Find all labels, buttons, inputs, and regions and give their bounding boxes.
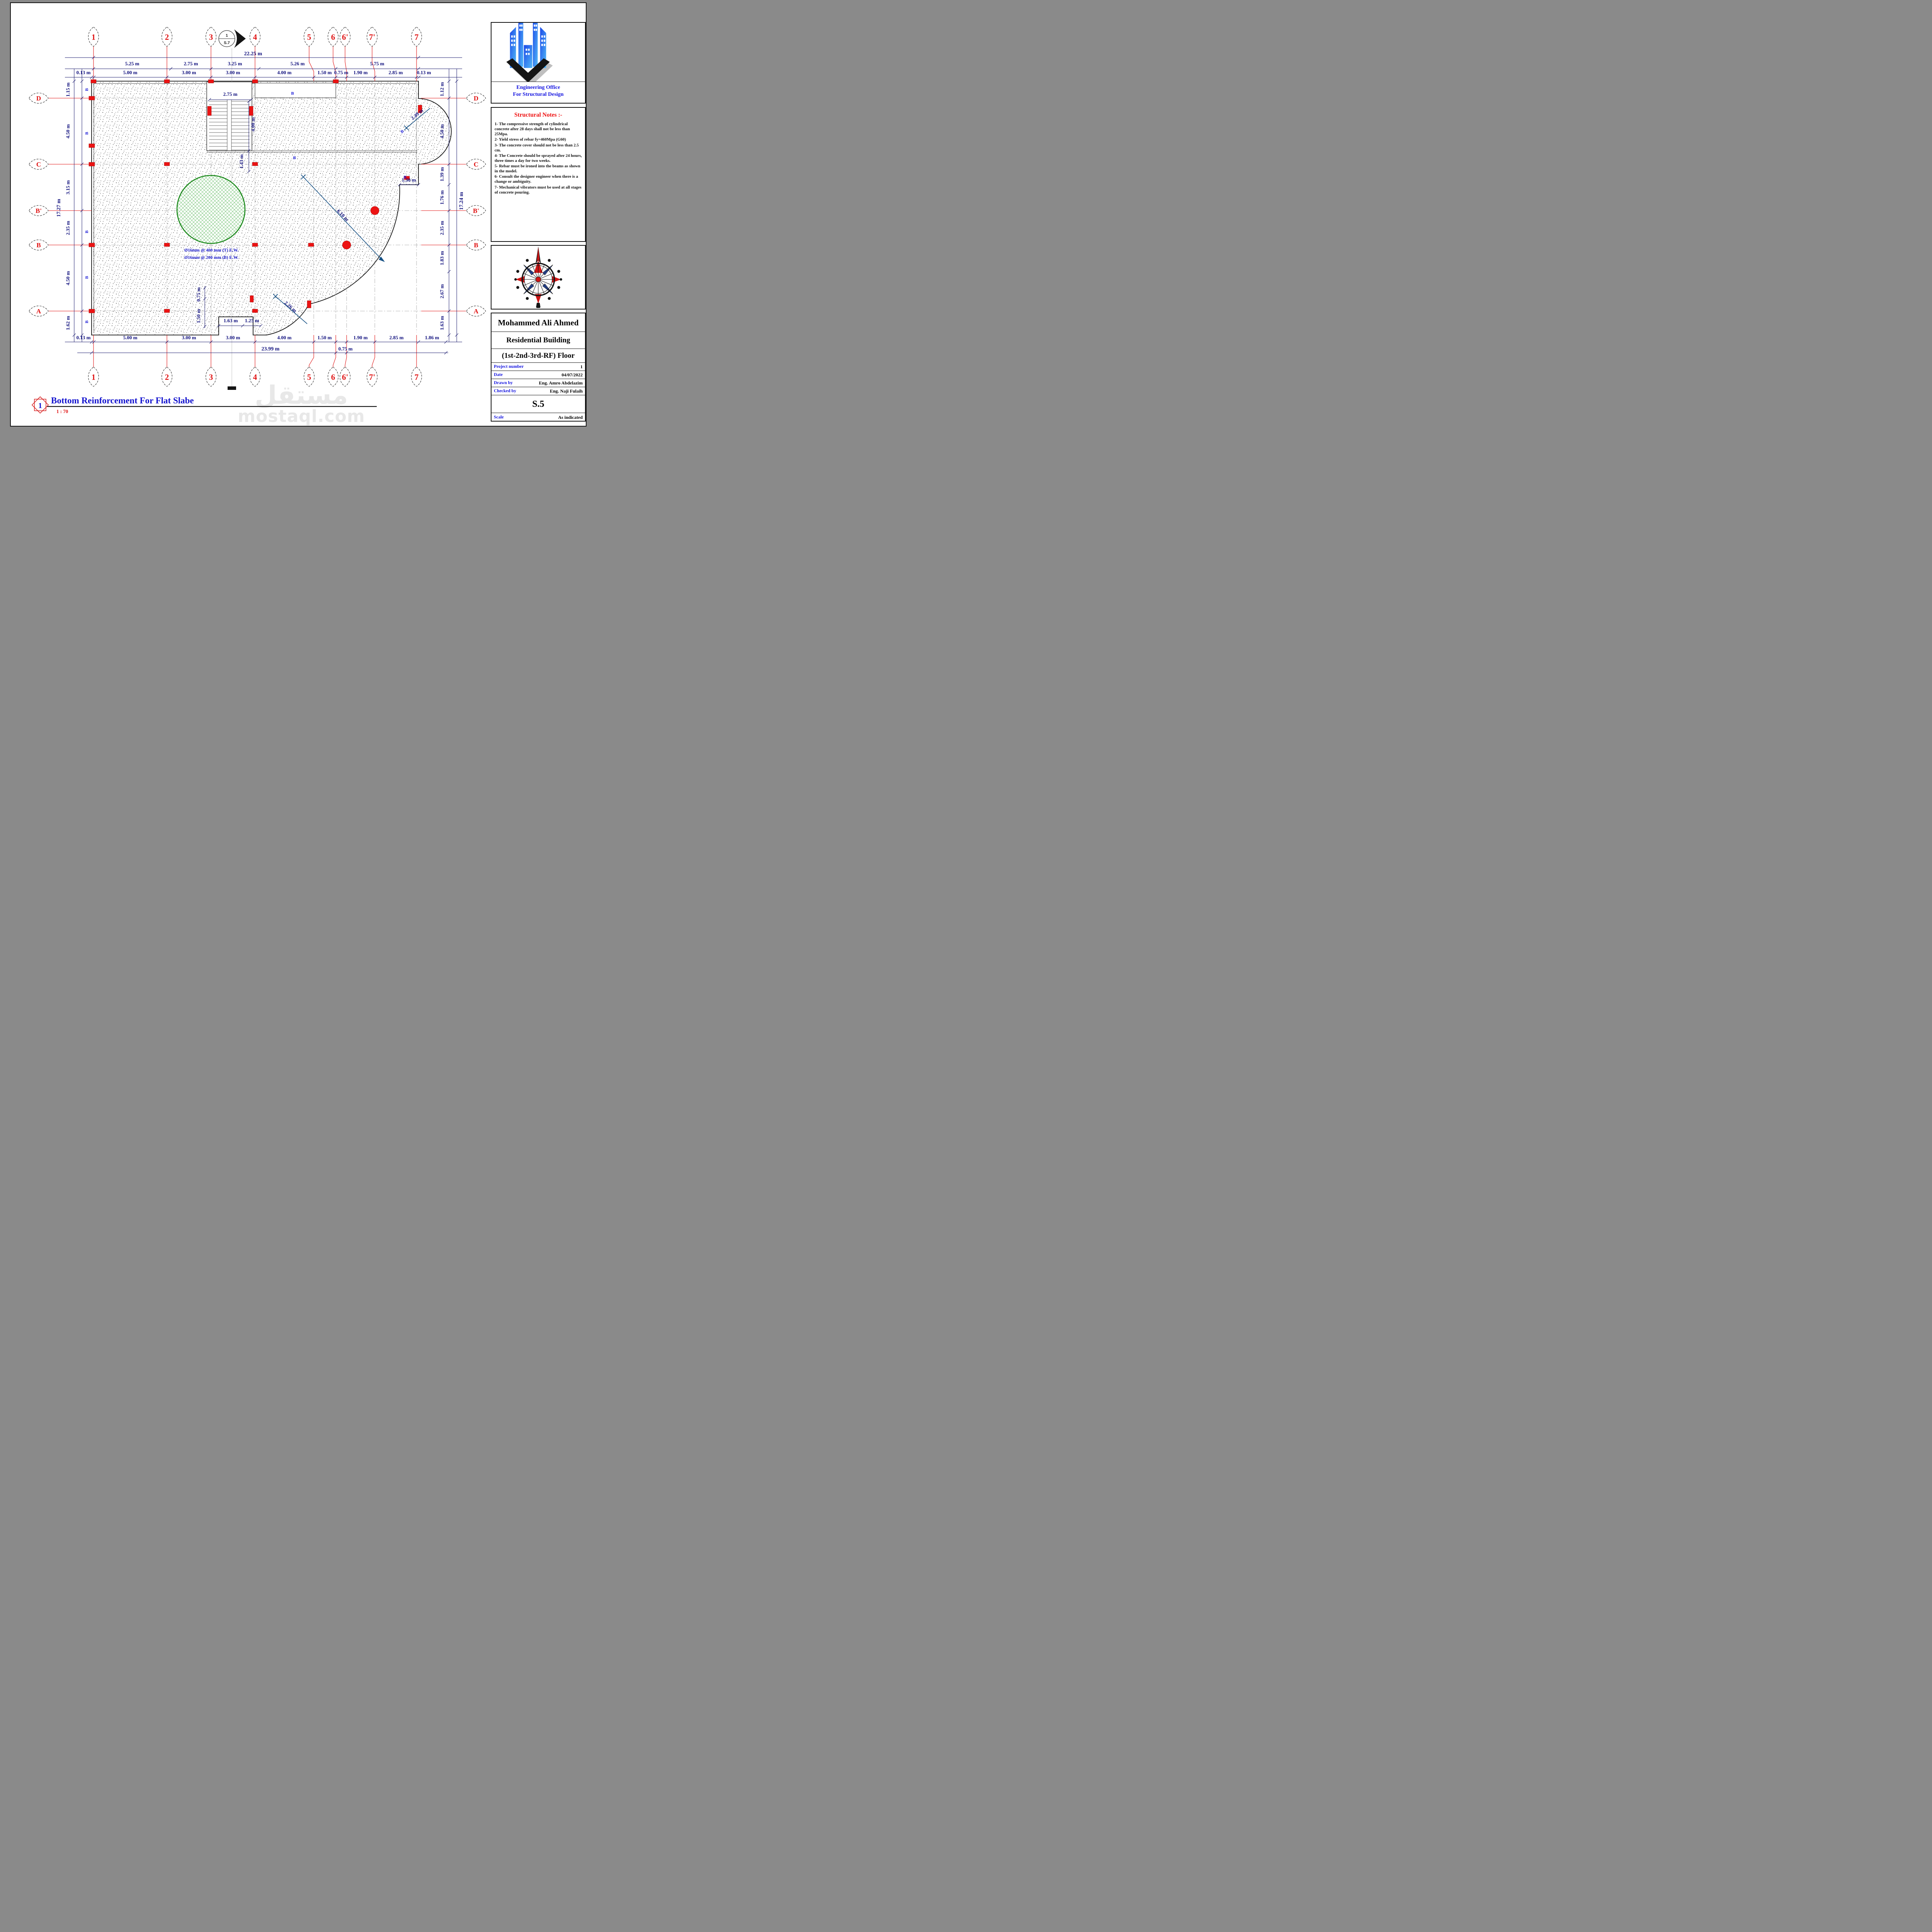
field-label: Scale xyxy=(494,415,504,420)
owner-name: Mohammed Ali Ahmed xyxy=(492,313,585,332)
field-value: 1 xyxy=(580,364,583,370)
field-label: Checked by xyxy=(494,389,516,393)
structural-note: 5- Rebar must be ironed into the beams a… xyxy=(495,164,582,174)
project-name: Residential Building xyxy=(492,332,585,349)
watermark-arabic: مستقل xyxy=(216,383,386,408)
field-row-date: Date 04/07/2022 xyxy=(492,371,585,379)
office-name-line1: Engineering Office xyxy=(493,84,583,91)
structural-note: 1- The compressive strength of cylindric… xyxy=(495,122,582,137)
logo-box: Engineering Office For Structural Design xyxy=(491,22,586,104)
field-label: Drawn by xyxy=(494,381,513,385)
structural-note: 2- Yield stress of rebar fy=460Mpa (G60) xyxy=(495,137,582,142)
drawing-sheet-page: مستقل mostaql.com xyxy=(0,0,599,430)
structural-note: 4- The Concrete should be sprayed after … xyxy=(495,153,582,163)
structural-note: 3- The concrete cover should not be less… xyxy=(495,143,582,153)
office-logo xyxy=(492,23,585,82)
field-row-scale: Scale As indicated xyxy=(492,413,585,422)
field-value: As indicated xyxy=(558,415,583,420)
title-block: Mohammed Ali Ahmed Residential Building … xyxy=(491,313,586,422)
field-value: Eng. Naji Fulaih xyxy=(550,388,583,394)
field-value: 04/07/2022 xyxy=(561,372,583,378)
north-compass-icon xyxy=(492,246,585,308)
field-label: Project number xyxy=(494,364,524,369)
office-name-line2: For Structural Design xyxy=(493,91,583,98)
compass-box xyxy=(491,245,586,310)
structural-note: 6- Consult the designer engineer when th… xyxy=(495,174,582,184)
field-value: Eng. Amro Abdelazim xyxy=(539,380,583,386)
structural-note: 7- Mechanical vibrators must be used at … xyxy=(495,185,582,195)
sheet-number: S.5 xyxy=(492,395,585,413)
field-row-project-number: Project number 1 xyxy=(492,363,585,371)
notes-title: Structural Notes :- xyxy=(495,112,582,119)
field-row-drawn-by: Drawn by Eng. Amro Abdelazim xyxy=(492,379,585,387)
watermark: مستقل mostaql.com xyxy=(216,383,386,425)
field-row-checked-by: Checked by Eng. Naji Fulaih xyxy=(492,387,585,395)
field-label: Date xyxy=(494,372,503,377)
structural-notes-box: Structural Notes :- 1- The compressive s… xyxy=(491,107,586,242)
floor-name: (1st-2nd-3rd-RF) Floor xyxy=(492,349,585,363)
watermark-latin: mostaql.com xyxy=(216,408,386,425)
